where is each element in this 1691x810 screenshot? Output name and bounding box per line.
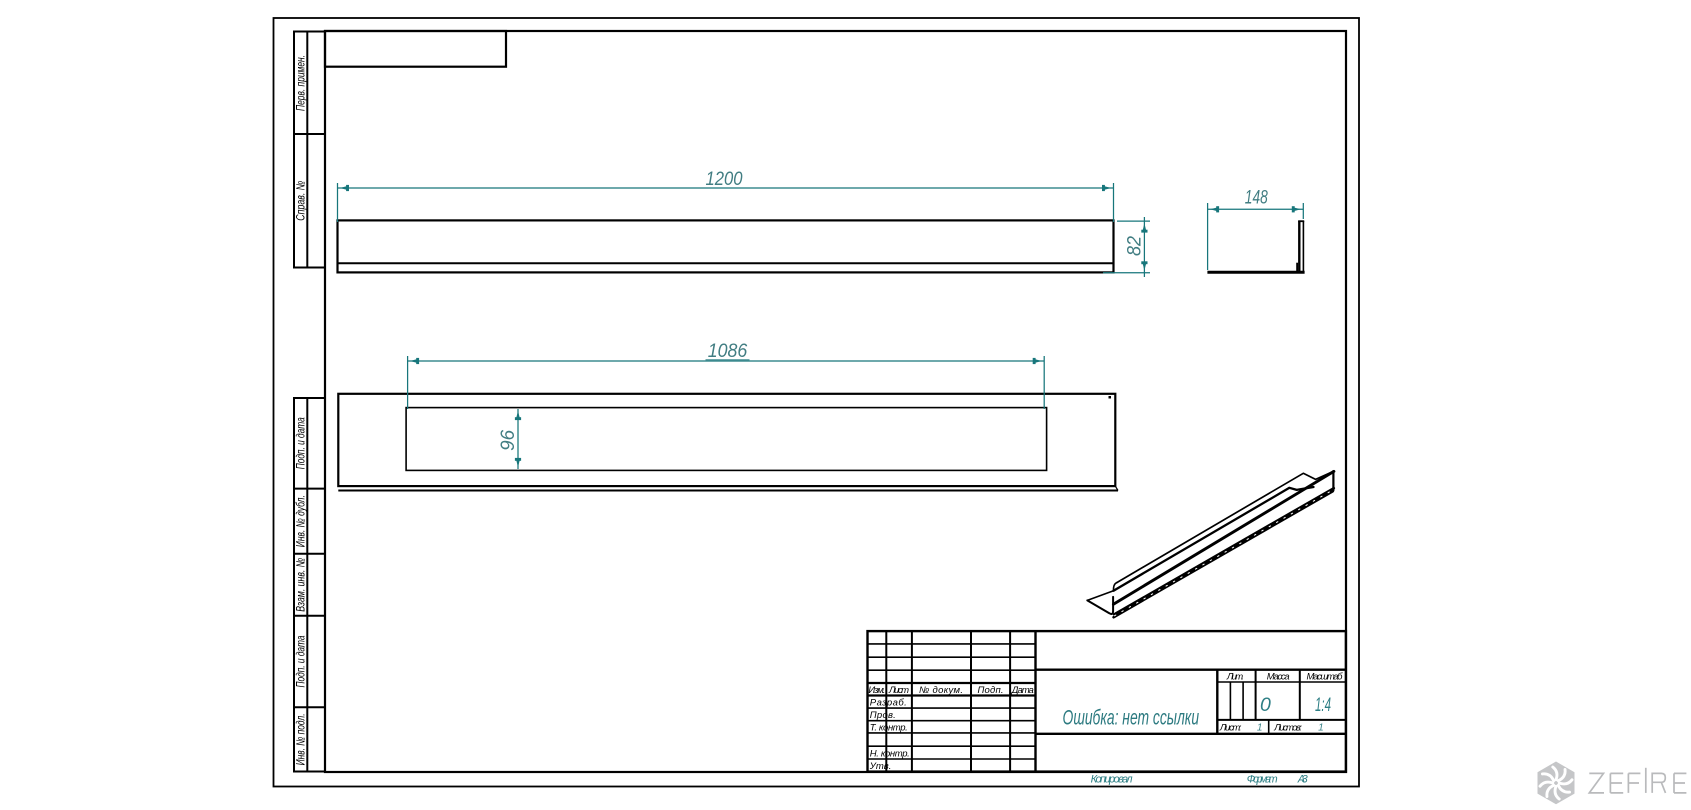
svg-text:Утв.: Утв. (869, 761, 892, 772)
svg-text:Подп.: Подп. (978, 685, 1004, 696)
svg-text:1: 1 (1318, 722, 1324, 733)
svg-text:Листов:: Листов: (1273, 722, 1302, 733)
svg-text:А3: А3 (1297, 774, 1309, 786)
svg-text:Подп. и дата: Подп. и дата (294, 417, 308, 469)
svg-text:1:4: 1:4 (1315, 694, 1331, 716)
svg-text:Перв. примен.: Перв. примен. (294, 55, 308, 111)
svg-text:Справ. №: Справ. № (294, 181, 308, 221)
svg-text:Т. контр.: Т. контр. (870, 722, 908, 733)
svg-text:Масштаб: Масштаб (1307, 671, 1344, 682)
svg-text:Изм.: Изм. (868, 685, 885, 696)
svg-text:1: 1 (1257, 722, 1263, 733)
svg-text:82: 82 (1123, 236, 1145, 256)
svg-text:148: 148 (1245, 188, 1268, 209)
svg-text:Пров.: Пров. (870, 710, 896, 721)
svg-text:Инв. № подл.: Инв. № подл. (294, 713, 308, 765)
svg-text:Формат: Формат (1247, 774, 1278, 786)
svg-text:0: 0 (1260, 694, 1271, 716)
svg-text:96: 96 (497, 430, 519, 451)
svg-text:Н. контр.: Н. контр. (870, 748, 910, 759)
svg-text:1086: 1086 (708, 341, 748, 362)
svg-text:Масса: Масса (1267, 671, 1290, 682)
svg-text:№ докум.: № докум. (919, 685, 963, 696)
svg-text:Инв. № дубл.: Инв. № дубл. (294, 495, 308, 547)
svg-text:Дата: Дата (1011, 685, 1034, 696)
svg-text:Лист: Лист (888, 685, 909, 696)
svg-text:Ошибка: нет ссылки: Ошибка: нет ссылки (1063, 707, 1200, 730)
svg-text:Взам. инв. №: Взам. инв. № (294, 558, 308, 612)
svg-text:1200: 1200 (706, 169, 743, 190)
svg-text:Подп. и дата: Подп. и дата (294, 635, 308, 687)
svg-text:Копировал: Копировал (1091, 774, 1133, 786)
svg-text:Разраб.: Разраб. (870, 698, 907, 709)
svg-text:Лит.: Лит. (1226, 671, 1244, 682)
svg-text:Лист:: Лист: (1219, 722, 1242, 733)
